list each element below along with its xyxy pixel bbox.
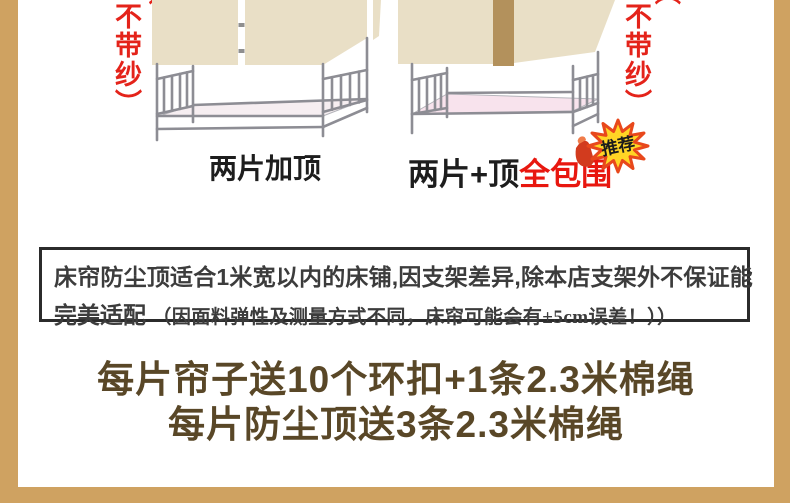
left-side-note: 不带纱） <box>112 2 139 118</box>
right-bed-dust-top-strip <box>493 0 514 66</box>
right-side-note-paren: （ <box>654 0 680 5</box>
left-bed-curtain-panel-b <box>245 0 367 65</box>
right-bed-curtain-panel-b <box>514 0 615 63</box>
gift-info-block: 每片帘子送10个环扣+1条2.3米棉绳 每片防尘顶送3条2.3米棉绳 <box>18 357 774 447</box>
fit-notice-line2-note: （因面料弹性及测量方式不同，床帘可能会有±5cm误差！）） <box>152 307 676 328</box>
left-border-strip <box>0 0 18 503</box>
variant-label-right-black: 两片+顶 <box>408 157 519 192</box>
gift-line-1: 每片帘子送10个环扣+1条2.3米棉绳 <box>18 357 774 402</box>
bunk-bed-illustration-left <box>145 0 385 148</box>
curtain-clip-icon <box>239 23 245 27</box>
fit-notice-line2: 完美适配 （因面料弹性及测量方式不同，床帘可能会有±5cm误差！）） <box>54 296 735 330</box>
right-border-strip <box>774 0 790 503</box>
fit-notice-line2-bold: 完美适配 <box>54 302 146 328</box>
left-bed-curtain-panel-a <box>152 0 238 65</box>
bottom-border-bar <box>0 487 790 503</box>
recommended-badge: 推荐 <box>566 116 656 176</box>
fit-notice-line1: 床帘防尘顶适合1米宽以内的床铺,因支架差异,除本店支架外不保证能 <box>54 258 735 292</box>
curtain-clip-icon <box>239 49 245 53</box>
right-bed-curtain-panel-a <box>398 0 493 64</box>
left-bed-curtain-corner <box>373 0 381 40</box>
gift-line-2: 每片防尘顶送3条2.3米棉绳 <box>18 402 774 447</box>
fit-notice-box: 床帘防尘顶适合1米宽以内的床铺,因支架差异,除本店支架外不保证能 完美适配 （因… <box>39 247 750 322</box>
variant-label-left: 两片加顶 <box>145 147 385 187</box>
